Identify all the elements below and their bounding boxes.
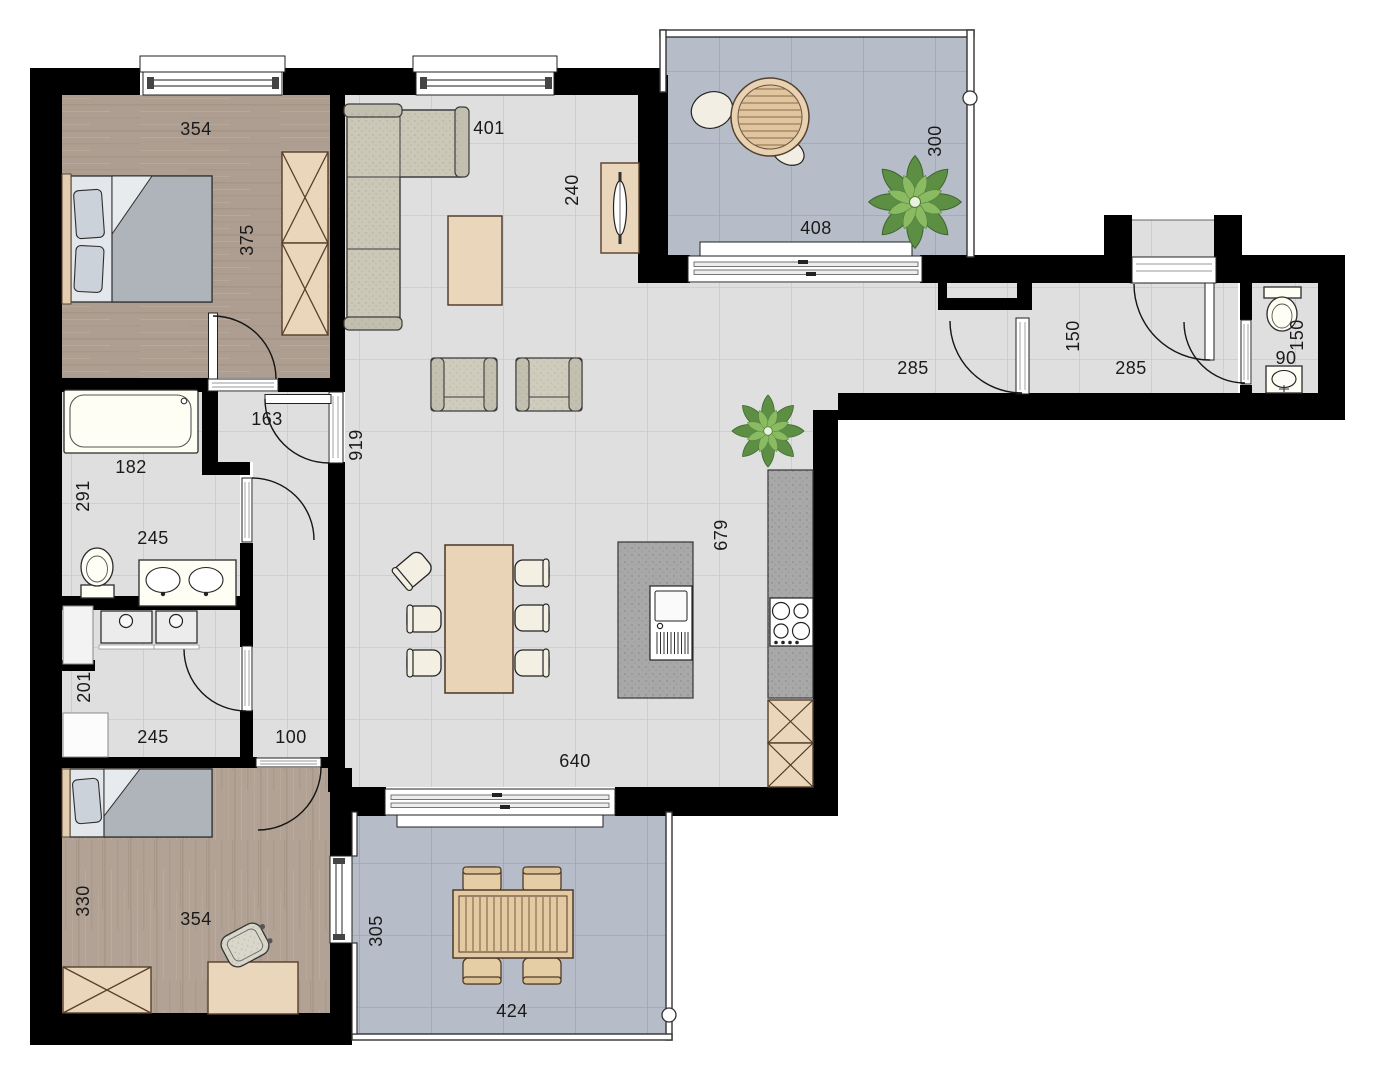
dim-hall-width: 150 xyxy=(1063,320,1083,352)
armchair-1 xyxy=(431,358,497,411)
washing-machine xyxy=(99,611,154,649)
tub-faucet xyxy=(181,398,187,404)
dim-terrace2-depth: 305 xyxy=(366,915,386,947)
dim-corridor-width: 100 xyxy=(275,727,307,747)
dim-living-left-depth: 919 xyxy=(346,429,366,461)
utility-cabinet-2 xyxy=(63,713,108,757)
floor-plan-page: 354 375 401 240 919 408 300 285 150 285 … xyxy=(0,0,1379,1080)
sideboard xyxy=(601,163,639,253)
dim-terrace1-depth: 300 xyxy=(925,125,945,157)
dim-bathroom-width: 245 xyxy=(137,528,169,548)
dim-hall-seg1: 285 xyxy=(897,358,929,378)
dim-kitchen-side-depth: 679 xyxy=(711,519,731,551)
bedroom2-window xyxy=(330,856,352,943)
dim-bedroom2-width: 354 xyxy=(180,909,212,929)
dim-bedroom2-depth: 330 xyxy=(73,885,93,917)
dim-sideboard-wall: 240 xyxy=(562,174,582,206)
dim-bedroom1-depth: 375 xyxy=(237,224,257,256)
plant-icon xyxy=(732,395,804,467)
terrace1-rail-right xyxy=(967,30,974,257)
floor-plan-svg: 354 375 401 240 919 408 300 285 150 285 … xyxy=(0,0,1379,1080)
dim-wc-depth: 150 xyxy=(1287,319,1307,351)
dining-table xyxy=(445,545,513,693)
dining-table-set xyxy=(391,545,549,693)
round-table xyxy=(731,78,809,156)
desk xyxy=(208,962,298,1014)
dryer xyxy=(154,611,199,649)
double-bed xyxy=(62,174,212,304)
wardrobe xyxy=(282,152,328,335)
bedroom1-window xyxy=(140,56,285,95)
plant-icon xyxy=(869,156,962,249)
hob xyxy=(770,598,813,646)
terrace1-sliding-door xyxy=(688,242,922,282)
coffee-table xyxy=(448,216,502,305)
living-window xyxy=(413,56,557,95)
dim-bathtub-length: 182 xyxy=(115,457,147,477)
terrace2-rail-left-b xyxy=(352,943,357,1034)
utility-cabinet-1 xyxy=(63,606,93,664)
drain-symbol xyxy=(662,1008,676,1022)
bathtub xyxy=(64,390,198,453)
dim-bathroom-depth: 291 xyxy=(73,480,93,512)
drain-symbol xyxy=(963,91,977,105)
dim-utility-width: 245 xyxy=(137,727,169,747)
dim-terrace2-width: 424 xyxy=(496,1001,528,1021)
bathroom-toilet xyxy=(81,548,114,598)
dim-living-bottom-width: 640 xyxy=(559,751,591,771)
terrace2-rail-left-a xyxy=(352,812,357,856)
dim-hall163-width: 163 xyxy=(251,409,283,429)
wc-washbasin xyxy=(1266,366,1302,393)
wardrobe xyxy=(63,967,151,1013)
corridor-floor xyxy=(253,462,328,758)
dim-utility-depth: 201 xyxy=(74,671,94,703)
armchair-2 xyxy=(516,358,582,411)
terrace2-rail-right xyxy=(666,812,672,1040)
dim-terrace1-width: 408 xyxy=(800,218,832,238)
garden-table xyxy=(453,890,573,958)
terrace2-sliding-door xyxy=(385,789,615,827)
terrace2-rail-bottom xyxy=(352,1034,672,1040)
dim-hall-seg2: 285 xyxy=(1115,358,1147,378)
double-washbasin xyxy=(139,560,236,606)
kitchen-island xyxy=(618,542,693,698)
terrace1-rail-top xyxy=(660,30,974,37)
single-bed xyxy=(62,769,212,837)
shaft-niche-inner xyxy=(947,283,1017,298)
dim-living-width: 401 xyxy=(473,118,505,138)
kitchen-counter xyxy=(768,470,813,787)
terrace1-rail-left xyxy=(660,30,666,92)
living-floor-main xyxy=(345,412,813,787)
dim-bedroom1-width: 354 xyxy=(180,119,212,139)
